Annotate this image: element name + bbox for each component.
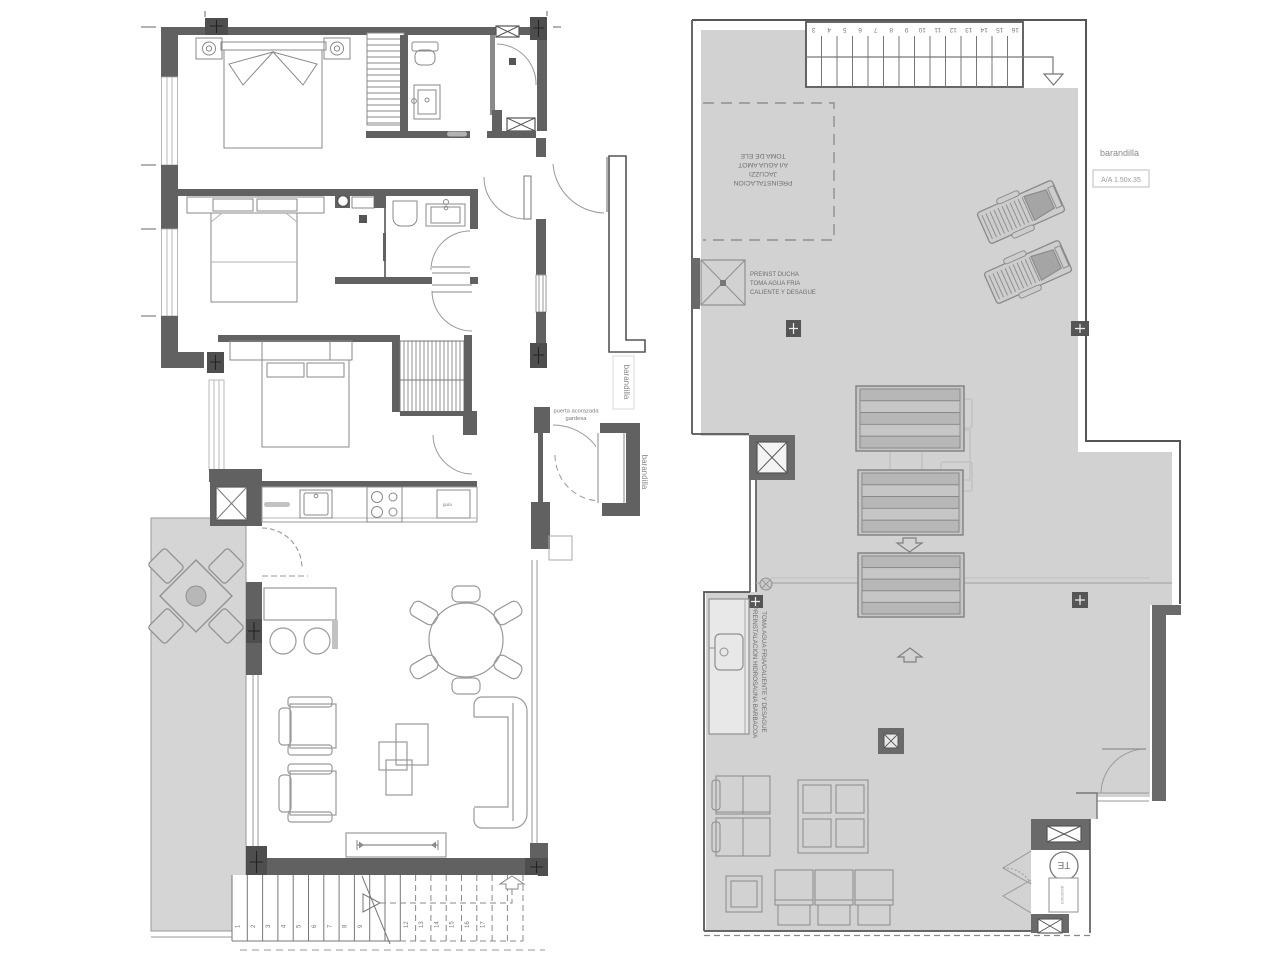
svg-text:puerta acorazada: puerta acorazada [553, 409, 599, 415]
svg-text:TOMA AGUA FRIA: TOMA AGUA FRIA [750, 281, 800, 287]
svg-text:PREINSTALACION HIDROSAUNA BARB: PREINSTALACION HIDROSAUNA BARBACOA [751, 606, 758, 739]
svg-text:7: 7 [874, 26, 878, 33]
svg-text:8: 8 [889, 26, 893, 33]
svg-text:13: 13 [965, 26, 973, 33]
svg-text:barandilla: barandilla [622, 365, 631, 400]
svg-text:guía: guía [443, 502, 452, 507]
svg-text:PREINSTALACION: PREINSTALACION [734, 179, 793, 186]
svg-text:CALIENTE Y DESAGUE: CALIENTE Y DESAGUE [750, 290, 816, 296]
svg-text:3: 3 [812, 26, 816, 33]
svg-text:12: 12 [949, 26, 957, 33]
svg-text:17: 17 [480, 921, 486, 928]
svg-text:ascensor: ascensor [1060, 886, 1065, 905]
svg-text:barandilla: barandilla [1100, 148, 1139, 158]
svg-text:JACUZZI: JACUZZI [749, 170, 777, 177]
svg-text:10: 10 [918, 26, 926, 33]
svg-text:TOMA AGUA FRIA/CALIENTE Y DESA: TOMA AGUA FRIA/CALIENTE Y DESAGUE [760, 611, 767, 732]
svg-text:5: 5 [843, 26, 847, 33]
svg-text:13: 13 [419, 921, 425, 928]
svg-text:TOMA DE ELE: TOMA DE ELE [740, 152, 786, 159]
svg-text:A/A 1.50x.35: A/A 1.50x.35 [1101, 177, 1141, 184]
svg-text:barandilla: barandilla [640, 455, 649, 490]
svg-text:9: 9 [905, 26, 909, 33]
svg-text:gardesa: gardesa [566, 416, 588, 422]
svg-text:11: 11 [934, 26, 941, 33]
svg-text:TE: TE [1057, 859, 1070, 870]
svg-text:14: 14 [434, 921, 440, 928]
svg-text:16: 16 [465, 921, 471, 928]
svg-text:15: 15 [450, 921, 456, 928]
svg-text:PREINST DUCHA: PREINST DUCHA [750, 272, 799, 278]
svg-text:16: 16 [1011, 26, 1019, 33]
svg-text:6: 6 [858, 26, 862, 33]
svg-text:4: 4 [827, 26, 831, 33]
svg-text:A/I AGUA AMOT: A/I AGUA AMOT [738, 161, 788, 168]
svg-text:12: 12 [404, 921, 410, 928]
svg-text:15: 15 [996, 26, 1004, 33]
svg-text:14: 14 [980, 26, 988, 33]
